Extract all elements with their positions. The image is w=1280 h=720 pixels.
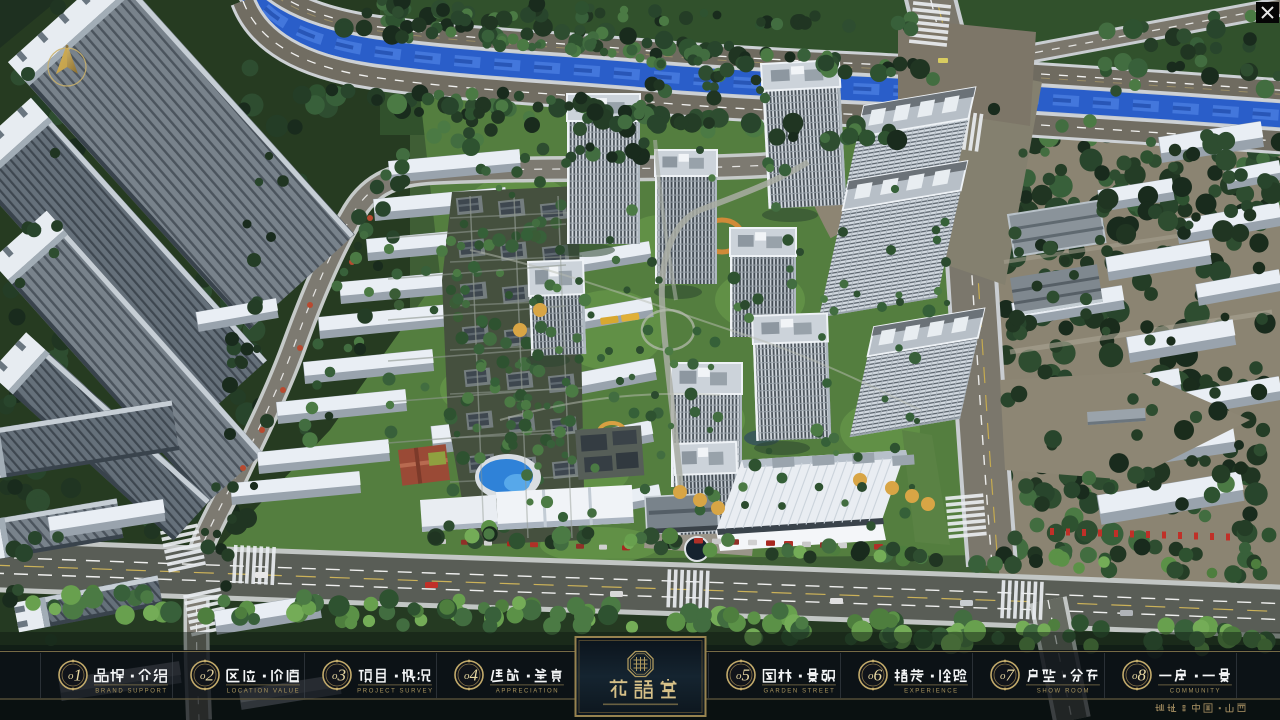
svg-text:LOCATION VALUE: LOCATION VALUE <box>227 689 301 695</box>
svg-text:5: 5 <box>742 666 751 685</box>
svg-text:COMMUNITY: COMMUNITY <box>1170 689 1221 695</box>
svg-text:6: 6 <box>874 666 883 685</box>
svg-text:8: 8 <box>1138 666 1147 685</box>
svg-text:APPRECIATION: APPRECIATION <box>496 689 559 695</box>
svg-text:4: 4 <box>470 666 479 685</box>
svg-text:PROJECT SURVEY: PROJECT SURVEY <box>357 689 434 695</box>
svg-text:3: 3 <box>337 666 347 685</box>
svg-text:1: 1 <box>74 666 83 685</box>
svg-text:GARDEN STREET: GARDEN STREET <box>764 689 836 695</box>
svg-text:SHOW ROOM: SHOW ROOM <box>1037 689 1090 695</box>
svg-text:2: 2 <box>206 666 215 685</box>
svg-text:EXPERIENCE: EXPERIENCE <box>904 689 959 695</box>
svg-text:BRAND SUPPORT: BRAND SUPPORT <box>95 689 167 695</box>
